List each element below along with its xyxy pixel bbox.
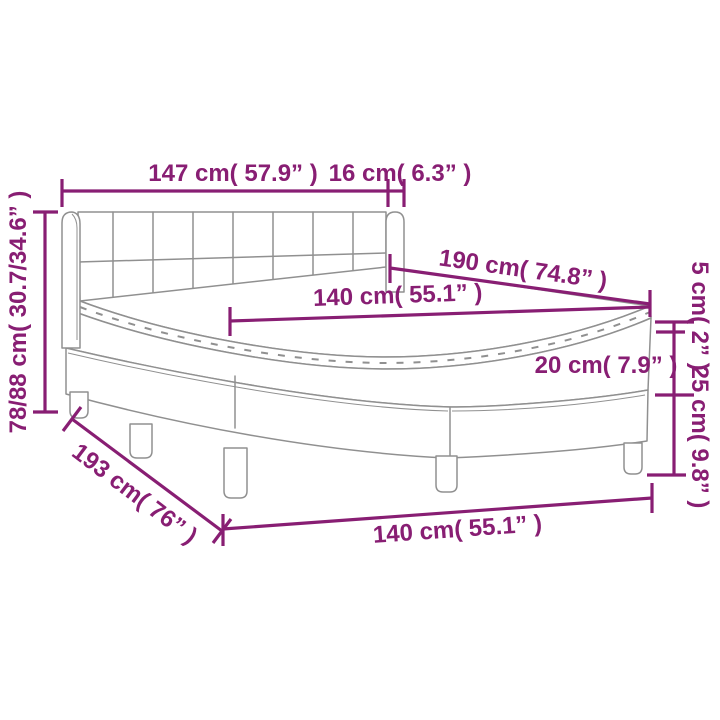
dim-label-wing-depth: 16 cm( 6.3” ): [329, 160, 472, 187]
bed-diagram-canvas: 147 cm( 57.9” ) 16 cm( 6.3” ) 78/88 cm( …: [0, 0, 720, 720]
leg: [70, 392, 88, 418]
dim-label-overall-height: 78/88 cm( 30.7/34.6” ): [5, 191, 32, 434]
dim-label-topper-height: 5 cm( 2” ): [686, 261, 713, 370]
leg: [224, 448, 247, 498]
dim-overall-height: 78/88 cm( 30.7/34.6” ): [5, 191, 58, 434]
dim-label-mattress-height: 20 cm( 7.9” ): [535, 352, 678, 379]
headboard-left-wing: [62, 212, 80, 348]
dimension-diagram: 147 cm( 57.9” ) 16 cm( 6.3” ) 78/88 cm( …: [0, 0, 720, 720]
dim-label-base-height: 25 cm( 9.8” ): [686, 366, 713, 509]
dim-wing-depth: 16 cm( 6.3” ): [329, 160, 472, 207]
leg: [436, 456, 457, 492]
leg: [130, 424, 152, 458]
dim-floor-width: 140 cm( 55.1” ): [223, 483, 652, 549]
leg: [624, 443, 642, 474]
dim-label-headboard-width: 147 cm( 57.9” ): [148, 160, 317, 187]
